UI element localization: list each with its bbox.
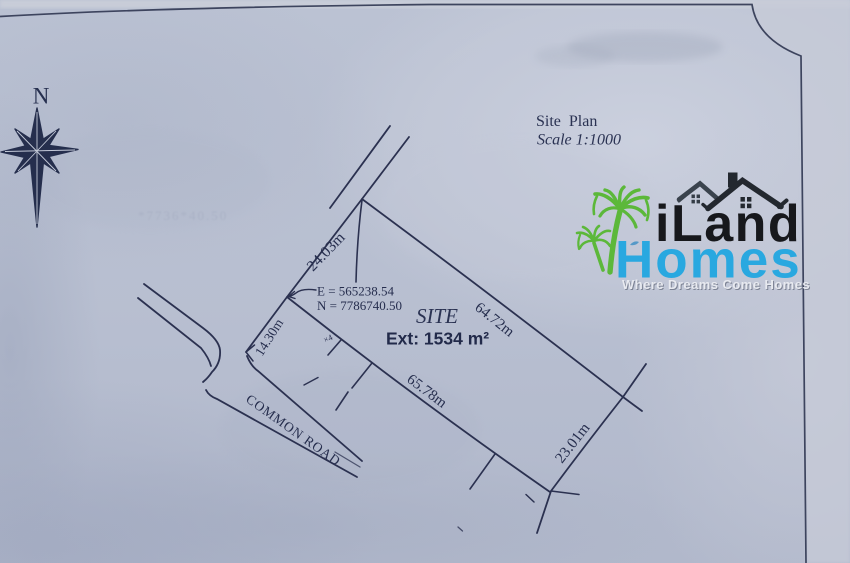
svg-text:Site Plan: Site Plan xyxy=(536,113,597,130)
svg-text:Ext: 1534 m²: Ext: 1534 m² xyxy=(386,329,489,349)
svg-text:Scale 1:1000: Scale 1:1000 xyxy=(537,132,621,149)
svg-text:E = 565238.54: E = 565238.54 xyxy=(317,284,395,299)
svg-text:Where Dreams Come Homes: Where Dreams Come Homes xyxy=(622,277,810,292)
svg-text:*7736*40.50: *7736*40.50 xyxy=(138,208,228,223)
svg-text:N = 7786740.50: N = 7786740.50 xyxy=(317,298,402,313)
svg-text:SITE: SITE xyxy=(416,304,458,328)
svg-text:N: N xyxy=(33,84,50,109)
